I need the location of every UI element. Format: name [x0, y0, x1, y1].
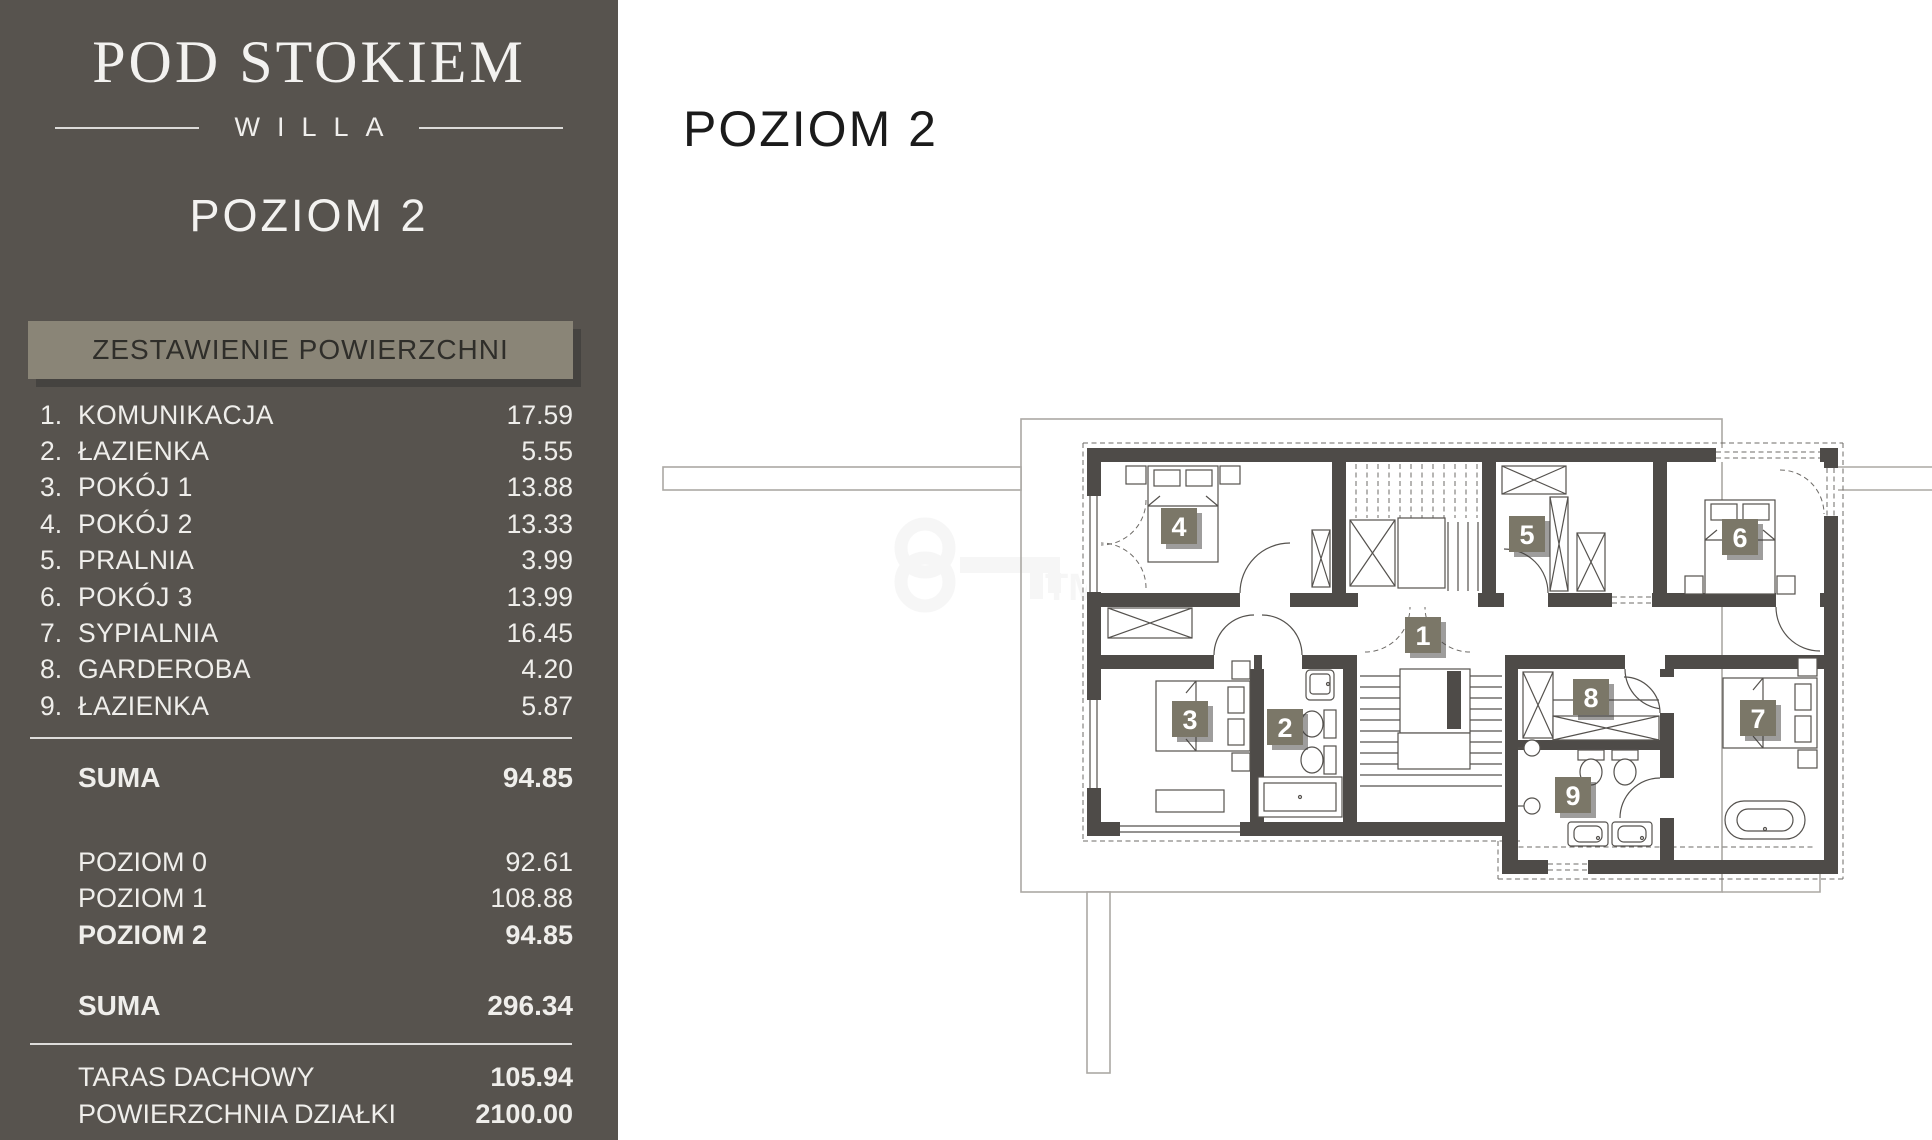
row-area: 17.59 — [507, 400, 573, 431]
divider — [30, 1043, 572, 1045]
row-name: POKÓJ 3 — [78, 582, 507, 613]
page: { "sidebar": { "logo_title": "POD STOKIE… — [0, 0, 1932, 1140]
level-row-current: POZIOM 2 94.85 — [0, 917, 618, 954]
level-label: POZIOM 2 — [78, 920, 207, 951]
row-area: 13.88 — [507, 472, 573, 503]
row-number: 7. — [40, 618, 78, 649]
logo-subtitle-row: WILLA — [55, 112, 563, 143]
row-name: GARDEROBA — [78, 654, 521, 685]
row-area: 3.99 — [521, 545, 573, 576]
svg-text:5: 5 — [1519, 520, 1534, 550]
row-name: POKÓJ 1 — [78, 472, 507, 503]
logo-rule-right — [419, 127, 563, 129]
total-value: 296.34 — [487, 990, 573, 1022]
extra-value: 2100.00 — [475, 1099, 573, 1130]
table-row: 3. POKÓJ 1 13.88 — [0, 470, 618, 506]
level-label: POZIOM 0 — [78, 847, 207, 878]
level-row: POZIOM 1 108.88 — [0, 881, 618, 918]
upper-staircase — [1350, 464, 1478, 591]
room-badge-7: 7 — [1740, 700, 1781, 741]
main-staircase — [1360, 669, 1502, 786]
room-badge-2: 2 — [1267, 709, 1308, 750]
row-name: SYPIALNIA — [78, 618, 507, 649]
table-row: 1. KOMUNIKACJA 17.59 — [0, 397, 618, 433]
extra-label: POWIERZCHNIA DZIAŁKI — [78, 1099, 396, 1130]
svg-text:9: 9 — [1565, 781, 1580, 811]
spacer — [160, 990, 487, 1022]
svg-text:7: 7 — [1750, 704, 1765, 734]
svg-text:3: 3 — [1182, 705, 1197, 735]
room-badge-8: 8 — [1573, 679, 1614, 720]
logo-rule-left — [55, 127, 199, 129]
total-sum-row: SUMA 296.34 — [0, 990, 618, 1022]
room-badge-4: 4 — [1161, 508, 1202, 549]
extra-row: POWIERZCHNIA DZIAŁKI 2100.00 — [0, 1096, 618, 1133]
row-name: PRALNIA — [78, 545, 521, 576]
row-number: 2. — [40, 436, 78, 467]
svg-text:4: 4 — [1171, 512, 1186, 542]
row-number: 9. — [40, 691, 78, 722]
row-number: 4. — [40, 509, 78, 540]
row-area: 4.20 — [521, 654, 573, 685]
suma-label: SUMA — [78, 762, 160, 794]
level-row: POZIOM 0 92.61 — [0, 844, 618, 881]
extra-row: TARAS DACHOWY 105.94 — [0, 1059, 618, 1096]
svg-text:1: 1 — [1415, 621, 1430, 651]
level-value: 108.88 — [490, 883, 573, 914]
row-area: 5.55 — [521, 436, 573, 467]
watermark-key-icon: TM — [901, 524, 1100, 609]
room-badge-9: 9 — [1555, 777, 1596, 818]
extras-table: TARAS DACHOWY 105.94 POWIERZCHNIA DZIAŁK… — [0, 1059, 618, 1133]
suma-value: 94.85 — [503, 762, 573, 794]
table-row: 4. POKÓJ 2 13.33 — [0, 506, 618, 542]
logo-title: POD STOKIEM — [0, 28, 618, 97]
row-number: 1. — [40, 400, 78, 431]
table-row: 2. ŁAZIENKA 5.55 — [0, 433, 618, 469]
row-number: 6. — [40, 582, 78, 613]
area-table-header: ZESTAWIENIE POWIERZCHNI — [28, 321, 573, 379]
row-area: 13.33 — [507, 509, 573, 540]
svg-text:2: 2 — [1277, 713, 1292, 743]
row-name: ŁAZIENKA — [78, 691, 521, 722]
level-label: POZIOM 1 — [78, 883, 207, 914]
plan-panel: POZIOM 2 TM — [618, 0, 1932, 1140]
row-number: 8. — [40, 654, 78, 685]
extra-label: TARAS DACHOWY — [78, 1062, 315, 1093]
sidebar: POD STOKIEM WILLA POZIOM 2 ZESTAWIENIE P… — [0, 0, 618, 1140]
logo-subtitle: WILLA — [217, 112, 400, 143]
level-value: 92.61 — [505, 847, 573, 878]
row-number: 3. — [40, 472, 78, 503]
table-row: 9. ŁAZIENKA 5.87 — [0, 688, 618, 724]
room-badge-6: 6 — [1722, 519, 1763, 560]
row-name: POKÓJ 2 — [78, 509, 507, 540]
divider — [30, 737, 572, 739]
table-row: 6. POKÓJ 3 13.99 — [0, 579, 618, 615]
floor-plan: TM — [618, 0, 1932, 1140]
svg-text:6: 6 — [1732, 523, 1747, 553]
row-name: KOMUNIKACJA — [78, 400, 507, 431]
extra-value: 105.94 — [490, 1062, 573, 1093]
table-row: 8. GARDEROBA 4.20 — [0, 652, 618, 688]
levels-summary: POZIOM 0 92.61 POZIOM 1 108.88 POZIOM 2 … — [0, 844, 618, 954]
room-area-table: 1. KOMUNIKACJA 17.59 2. ŁAZIENKA 5.55 3.… — [0, 397, 618, 725]
table-row: 7. SYPIALNIA 16.45 — [0, 615, 618, 651]
svg-text:8: 8 — [1583, 683, 1598, 713]
row-name: ŁAZIENKA — [78, 436, 521, 467]
room-badge-3: 3 — [1172, 701, 1213, 742]
row-number: 5. — [40, 545, 78, 576]
row-area: 16.45 — [507, 618, 573, 649]
level-value: 94.85 — [505, 920, 573, 951]
room-badge-1: 1 — [1405, 617, 1446, 658]
room-badge-5: 5 — [1509, 516, 1550, 557]
row-area: 5.87 — [521, 691, 573, 722]
row-area: 13.99 — [507, 582, 573, 613]
table-row: 5. PRALNIA 3.99 — [0, 543, 618, 579]
sidebar-level-title: POZIOM 2 — [0, 190, 618, 242]
level-sum-row: SUMA 94.85 — [0, 762, 618, 794]
total-label: SUMA — [78, 990, 160, 1022]
spacer — [160, 762, 502, 794]
